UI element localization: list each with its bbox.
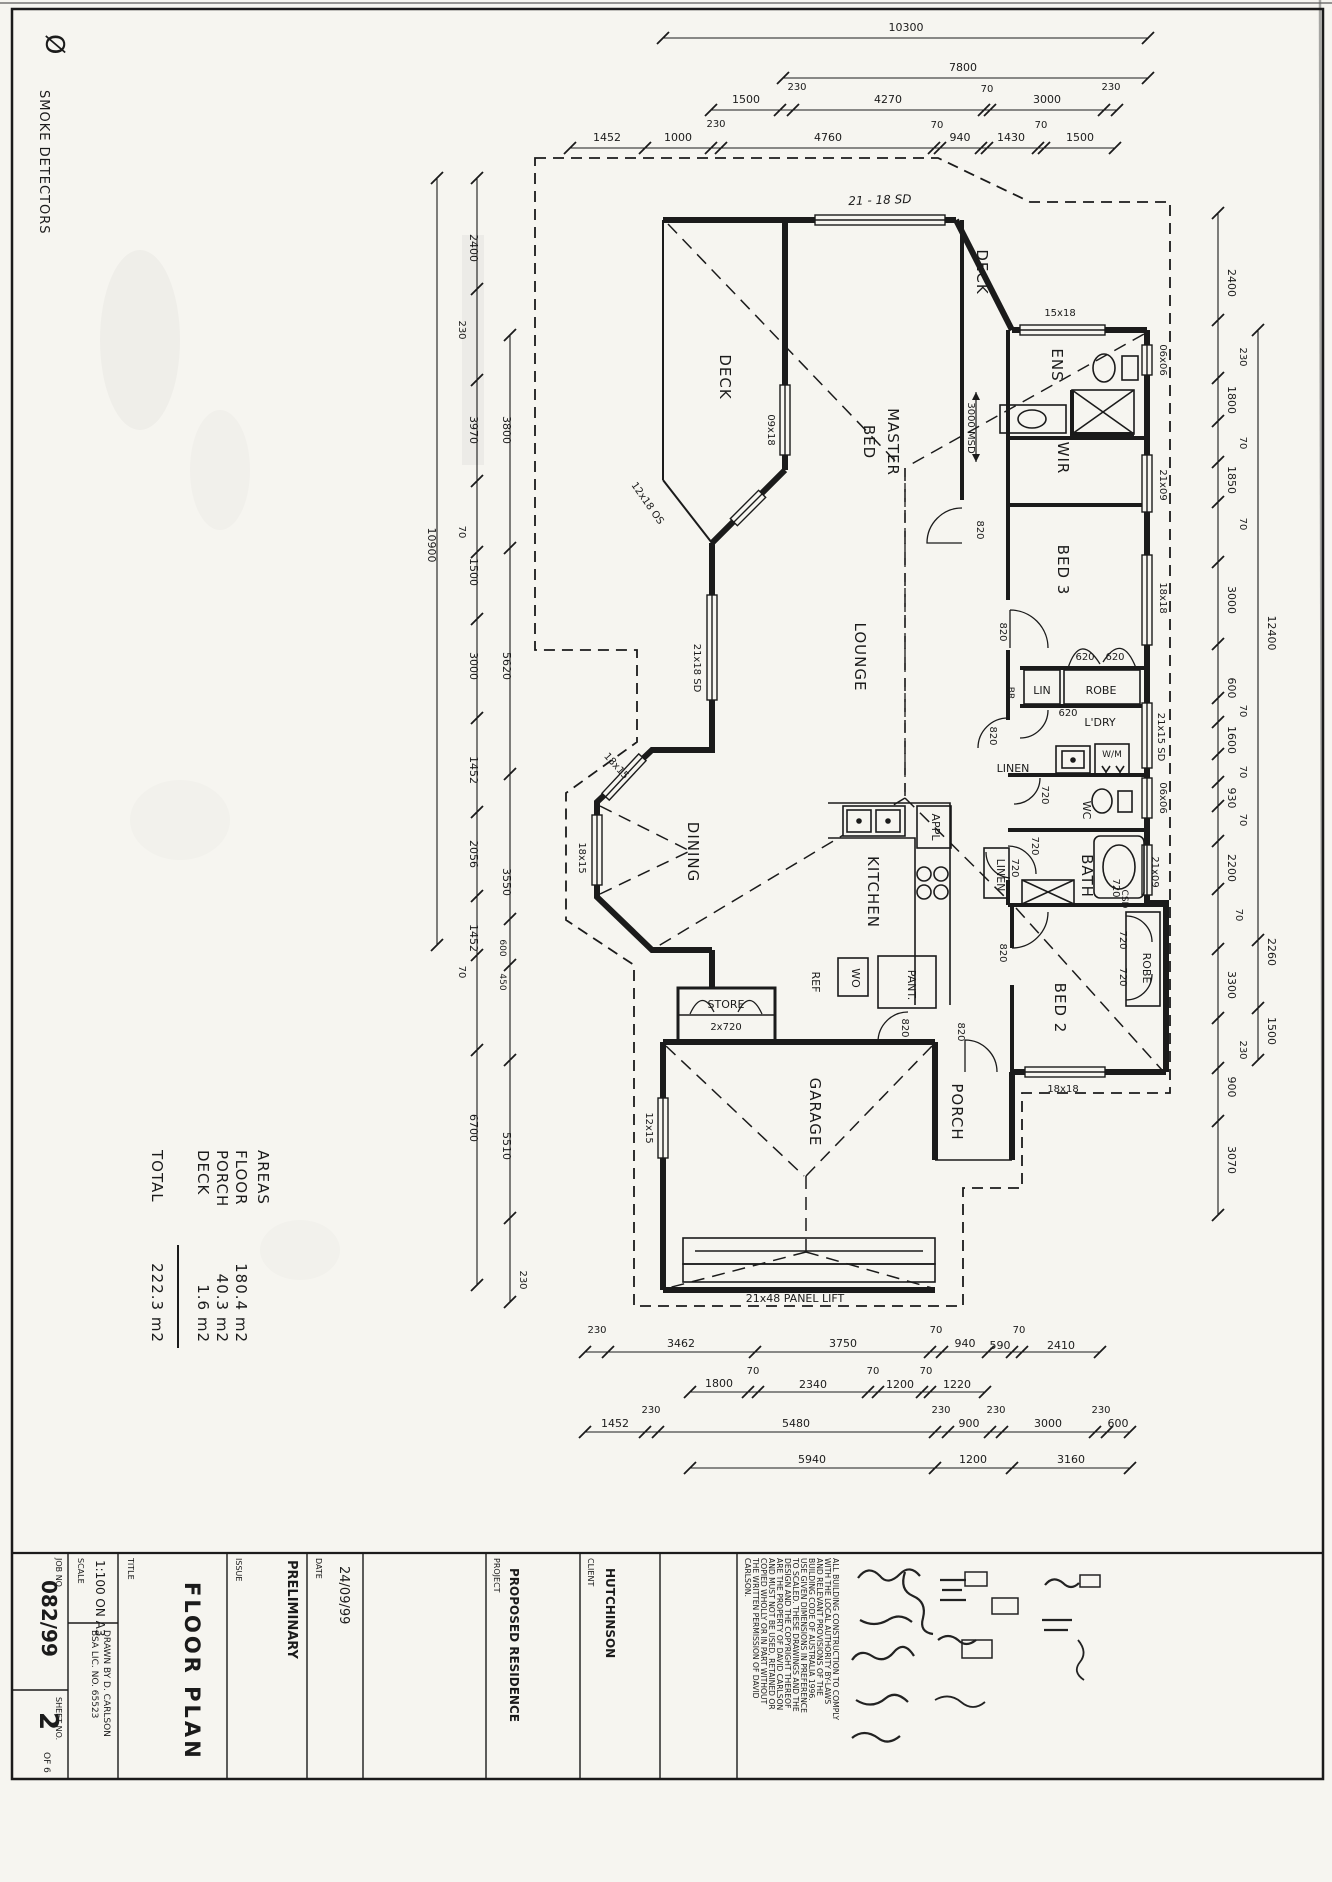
room-label-ldry: L'DRY <box>1084 716 1116 729</box>
dim-label: 2410 <box>1047 1339 1075 1352</box>
window-label: 18x18 <box>1157 582 1168 613</box>
door-label: 820 <box>997 622 1008 641</box>
dim-label: 70 <box>920 1366 933 1377</box>
areas-row-label: DECK <box>194 1150 212 1196</box>
window-label: 12x15 <box>643 1112 654 1143</box>
dim-label: 70 <box>867 1366 880 1377</box>
room-label-dining: DINING <box>684 822 702 882</box>
dim-label: 1452 <box>467 756 480 784</box>
dim-label: 3000 <box>467 652 480 680</box>
smoke-detector-symbol: Ø <box>39 34 69 54</box>
areas-row-value: 180.4 m2 <box>232 1263 250 1343</box>
project-label: PROJECT <box>492 1558 501 1593</box>
areas-row-value: 40.3 m2 <box>213 1274 231 1343</box>
room-label-wm: W/M <box>1102 750 1122 760</box>
areas-title: AREAS <box>254 1150 272 1205</box>
dim-label: 3800 <box>500 416 513 444</box>
dim-label: 600 <box>497 939 507 956</box>
dim-label: 3070 <box>1225 1146 1238 1174</box>
dim-label: 5510 <box>500 1132 513 1160</box>
dim-label: 2400 <box>467 234 480 262</box>
sheet-of: OF 6 <box>41 1752 51 1773</box>
window-label: 18x18 <box>1047 1084 1078 1095</box>
dim-label: 2400 <box>1225 269 1238 297</box>
issue-value: PRELIMINARY <box>284 1560 299 1660</box>
dim-label: 230 <box>1237 347 1248 366</box>
room-label-store: STORE <box>708 998 745 1011</box>
dim-label: 230 <box>456 320 467 339</box>
issue-label: ISSUE <box>234 1558 243 1581</box>
dim-label: 70 <box>1237 437 1248 450</box>
dim-label: 1500 <box>1265 1017 1278 1045</box>
window-label: 21x15 SD <box>1155 713 1166 762</box>
drawing-title: FLOOR PLAN <box>180 1582 204 1761</box>
dim-label: 3300 <box>1225 971 1238 999</box>
door-label: 720 <box>1039 785 1050 804</box>
dim-label: 1850 <box>1225 466 1238 494</box>
date-value: 24/09/99 <box>336 1566 351 1624</box>
room-label-wc: WC <box>1080 801 1093 820</box>
door-label: 620 <box>1075 652 1094 663</box>
drawn-by: DRAWN BY D. CARLSON <box>101 1630 111 1737</box>
areas-total-value: 222.3 m2 <box>148 1263 166 1343</box>
room-label-linen-hall: LINEN <box>997 762 1030 775</box>
dim-label: 2260 <box>1265 938 1278 966</box>
dim-label: 450 <box>497 973 507 990</box>
room-label-robe-bed3: ROBE <box>1086 684 1117 697</box>
room-label-garage: GARAGE <box>806 1078 824 1147</box>
door-label: 620 <box>1105 652 1124 663</box>
window-label: 06x06 <box>1157 782 1168 813</box>
dim-label: 70 <box>1237 705 1248 718</box>
dim-label: 590 <box>990 1339 1011 1352</box>
dim-label: 1200 <box>959 1453 987 1466</box>
dim-label: 230 <box>641 1405 660 1416</box>
dim-label: 5620 <box>500 652 513 680</box>
room-label-wir: WIR <box>1054 442 1072 475</box>
dim-label: 3750 <box>829 1337 857 1350</box>
areas-table: AREAS FLOOR PORCH DECK 180.4 m2 40.3 m2 … <box>148 1149 272 1348</box>
dim-label: 230 <box>986 1405 1005 1416</box>
sheet-no-value: 2 <box>33 1712 63 1730</box>
scale-value: 1:100 ON A3 <box>93 1560 107 1636</box>
window-label: 15x18 <box>1044 308 1075 319</box>
dim-label: 1200 <box>886 1378 914 1391</box>
dim-label: 1452 <box>601 1417 629 1430</box>
room-label-wo: WO <box>849 968 862 988</box>
dim-label: 5940 <box>798 1453 826 1466</box>
dim-labels-top: 10300 7800 1500 230 4270 70 3000 230 145… <box>593 21 1121 144</box>
room-label-porch: PORCH <box>948 1083 966 1140</box>
dim-label: 900 <box>1225 1077 1238 1098</box>
dim-label: 70 <box>931 120 944 131</box>
door-label: 820 <box>987 726 998 745</box>
door-label: 820 <box>974 520 985 539</box>
client-value: HUTCHINSON <box>603 1568 617 1658</box>
dim-label: 1430 <box>997 131 1025 144</box>
dim-label: 230 <box>706 119 725 130</box>
areas-row-value: 1.6 m2 <box>194 1284 212 1343</box>
title-block: JOB NO. 082/99 SHEET NO. 2 OF 6 SCALE 1:… <box>33 1557 1100 1773</box>
dim-label: 3000 <box>1225 586 1238 614</box>
dim-label: 12400 <box>1265 616 1278 651</box>
dim-label: 1500 <box>732 93 760 106</box>
room-label-lin: LIN <box>1033 684 1051 697</box>
window-label: 21x18 SD <box>691 644 702 693</box>
room-label-br: BR <box>1005 687 1015 699</box>
dim-label: 1000 <box>664 131 692 144</box>
dimension-ticks <box>431 32 1264 1474</box>
dim-label: 230 <box>1101 82 1120 93</box>
dim-label: 70 <box>1013 1325 1026 1336</box>
dim-label: 600 <box>1108 1417 1129 1430</box>
room-label-appl: APPL <box>929 814 942 842</box>
dim-label: 230 <box>517 1270 528 1289</box>
room-label-bed2: BED 2 <box>1051 983 1069 1034</box>
door-label: 720 <box>1110 878 1121 897</box>
window-label: 12x18 OS <box>629 480 666 526</box>
room-label-master-2: BED <box>860 425 878 459</box>
msd-note: 3000 MSD <box>965 402 976 454</box>
dim-label: 230 <box>1237 1040 1248 1059</box>
dim-label: 3462 <box>667 1337 695 1350</box>
dim-label: 3970 <box>467 416 480 444</box>
dim-label: 1452 <box>593 131 621 144</box>
dim-label: 70 <box>1237 766 1248 779</box>
areas-row-label: PORCH <box>213 1150 231 1207</box>
areas-total-label: TOTAL <box>148 1149 166 1203</box>
title-label: TITLE <box>126 1557 135 1580</box>
dim-label: 230 <box>931 1405 950 1416</box>
dim-label: 70 <box>1237 814 1248 827</box>
dim-label: 1600 <box>1225 726 1238 754</box>
panel-lift-note: 21x48 PANEL LIFT <box>746 1292 845 1305</box>
dim-label: 6700 <box>467 1114 480 1142</box>
dim-label: 1220 <box>943 1378 971 1391</box>
dim-label: 70 <box>1233 909 1244 922</box>
dim-label: 930 <box>1225 788 1238 809</box>
room-label-lounge: LOUNGE <box>851 623 869 692</box>
window-label: 21x09 <box>1149 856 1160 887</box>
dim-label: 1452 <box>467 924 480 952</box>
dim-label: 70 <box>930 1325 943 1336</box>
dim-label: 70 <box>1035 120 1048 131</box>
dim-labels-right: 2400 230 1800 70 1850 70 3000 600 70 160… <box>1225 269 1278 1174</box>
smoke-detector-label: SMOKE DETECTORS <box>36 90 51 235</box>
room-label-deck-b: DECK <box>716 354 734 400</box>
areas-row-label: FLOOR <box>232 1150 250 1206</box>
dim-label: 10300 <box>889 21 924 34</box>
plan-annotations: 21 - 18 SD 3000 MSD 21x48 PANEL LIFT <box>746 192 976 1305</box>
dim-label: 230 <box>787 82 806 93</box>
bsa-licence: BSA LIC. NO. 65523 <box>89 1630 99 1718</box>
dim-label: 3160 <box>1057 1453 1085 1466</box>
dim-label: 7800 <box>949 61 977 74</box>
stamp-scribbles <box>852 1569 1100 1741</box>
dim-label: 3550 <box>500 868 513 896</box>
dim-label: 1500 <box>467 558 480 586</box>
floorplan-drawing: 10300 7800 1500 230 4270 70 3000 230 145… <box>0 0 1332 1882</box>
dim-label: 1500 <box>1066 131 1094 144</box>
room-label-pant: PANT. <box>905 970 918 1001</box>
handwritten-sd-note: 21 - 18 SD <box>848 192 912 208</box>
door-label: 720 <box>1009 858 1020 877</box>
note-line: CARLSON. <box>743 1558 752 1597</box>
door-label: 2x720 <box>710 1022 741 1033</box>
dim-label: 70 <box>1237 518 1248 531</box>
construction-notes: ALL BUILDING CONSTRUCTION TO COMPLY WITH… <box>743 1557 840 1721</box>
dim-label: 3000 <box>1034 1417 1062 1430</box>
dim-label: 600 <box>1225 678 1238 699</box>
dim-label: 70 <box>981 84 994 95</box>
room-label-kitchen: KITCHEN <box>864 856 882 928</box>
dim-label: 70 <box>456 526 467 539</box>
door-label: 620 <box>1058 708 1077 719</box>
room-label-deck-a: DECK <box>973 249 991 295</box>
floorplan-sheet: 10300 7800 1500 230 4270 70 3000 230 145… <box>0 0 1332 1882</box>
window-label: 21x09 <box>1157 469 1168 500</box>
window-label: 18x15 <box>576 842 587 873</box>
dim-label: 70 <box>456 966 467 979</box>
door-label: 720 <box>1117 930 1128 949</box>
roof-hip-lines <box>600 224 1162 1288</box>
dim-label: 900 <box>959 1417 980 1430</box>
dim-label: 4760 <box>814 131 842 144</box>
dimension-lines <box>437 38 1258 1468</box>
door-label: 820 <box>997 943 1008 962</box>
dim-label: 940 <box>955 1337 976 1350</box>
dim-label: 230 <box>1091 1405 1110 1416</box>
room-label-bed3: BED 3 <box>1054 545 1072 596</box>
window-label: 18x15 <box>601 751 630 782</box>
date-label: DATE <box>314 1558 323 1579</box>
room-label-ref: REF <box>809 972 822 993</box>
room-label-bath: BATH <box>1078 854 1096 898</box>
scale-label: SCALE <box>76 1558 85 1584</box>
dim-labels-bottom: 230 3462 3750 70 940 590 70 2410 1800 70… <box>587 1325 1128 1466</box>
room-label-master-1: MASTER <box>884 408 902 476</box>
dim-label: 2200 <box>1225 854 1238 882</box>
walls <box>597 220 1166 1290</box>
window-label: 06x06 <box>1157 344 1168 375</box>
room-label-linen-bath: LINEN <box>994 859 1007 892</box>
dim-label: 2340 <box>799 1378 827 1391</box>
dim-label: 230 <box>587 1325 606 1336</box>
room-labels: DECK DECK MASTER BED ENS WIR BED 3 LOUNG… <box>684 249 1153 1146</box>
dim-label: 5480 <box>782 1417 810 1430</box>
dim-label: 940 <box>950 131 971 144</box>
window-label: 09x18 <box>765 414 776 445</box>
dim-label: 3000 <box>1033 93 1061 106</box>
door-label: 820 <box>955 1022 966 1041</box>
dim-label: 70 <box>747 1366 760 1377</box>
door-label: 720 <box>1029 836 1040 855</box>
dim-label: 1800 <box>1225 386 1238 414</box>
project-value: PROPOSED RESIDENCE <box>507 1568 521 1722</box>
door-label: 720 <box>1117 967 1128 986</box>
smoke-detector-legend: Ø SMOKE DETECTORS <box>36 34 69 235</box>
door-label: 820 <box>899 1018 910 1037</box>
job-no-value: 082/99 <box>37 1580 61 1657</box>
dim-label: 10900 <box>425 528 438 563</box>
room-label-ens: ENS <box>1048 348 1066 381</box>
dim-label: 4270 <box>874 93 902 106</box>
dim-label: 1800 <box>705 1377 733 1390</box>
dim-label: 2056 <box>467 840 480 868</box>
client-label: CLIENT <box>586 1558 595 1586</box>
room-label-robe-bed2: ROBE <box>1140 953 1153 984</box>
